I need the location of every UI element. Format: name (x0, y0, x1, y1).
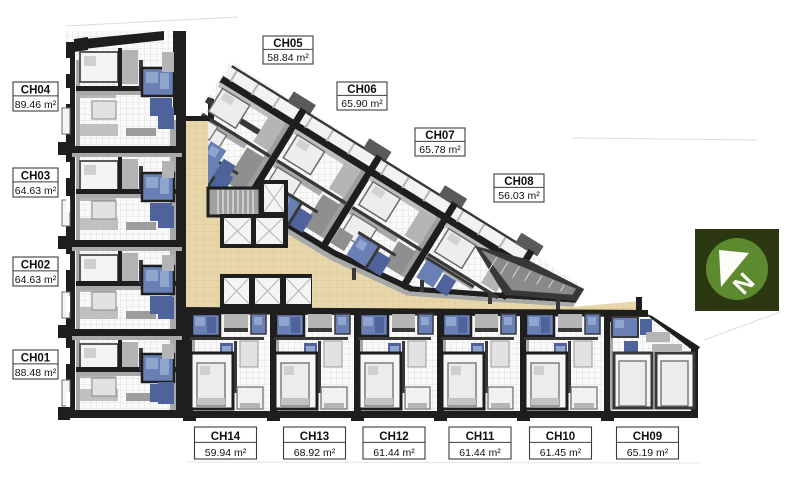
svg-text:58.84 m²: 58.84 m² (267, 52, 309, 64)
svg-text:CH05: CH05 (273, 38, 303, 50)
svg-text:68.92 m²: 68.92 m² (294, 447, 336, 459)
svg-text:61.44 m²: 61.44 m² (373, 447, 415, 459)
svg-text:CH04: CH04 (21, 85, 51, 97)
svg-text:56.03 m²: 56.03 m² (498, 190, 540, 202)
svg-text:CH02: CH02 (21, 260, 50, 272)
svg-text:CH11: CH11 (466, 431, 495, 443)
svg-text:65.78 m²: 65.78 m² (419, 144, 461, 156)
svg-text:64.63 m²: 64.63 m² (15, 185, 57, 197)
svg-text:61.44 m²: 61.44 m² (459, 447, 501, 459)
svg-text:59.94 m²: 59.94 m² (205, 447, 247, 459)
svg-text:CH13: CH13 (300, 431, 329, 443)
svg-text:89.46 m²: 89.46 m² (15, 99, 57, 111)
svg-text:CH03: CH03 (21, 171, 50, 183)
svg-text:88.48 m²: 88.48 m² (15, 367, 57, 379)
svg-text:CH06: CH06 (347, 84, 376, 96)
svg-text:CH10: CH10 (546, 431, 575, 443)
svg-text:CH01: CH01 (21, 353, 51, 365)
svg-text:64.63 m²: 64.63 m² (15, 274, 57, 286)
svg-text:CH09: CH09 (633, 431, 662, 443)
svg-text:CH12: CH12 (379, 431, 408, 443)
svg-text:65.19 m²: 65.19 m² (627, 447, 669, 459)
svg-text:CH07: CH07 (425, 130, 454, 142)
svg-text:61.45 m²: 61.45 m² (540, 447, 582, 459)
svg-text:65.90 m²: 65.90 m² (341, 98, 383, 110)
svg-text:CH14: CH14 (211, 431, 241, 443)
svg-text:CH08: CH08 (504, 176, 534, 188)
